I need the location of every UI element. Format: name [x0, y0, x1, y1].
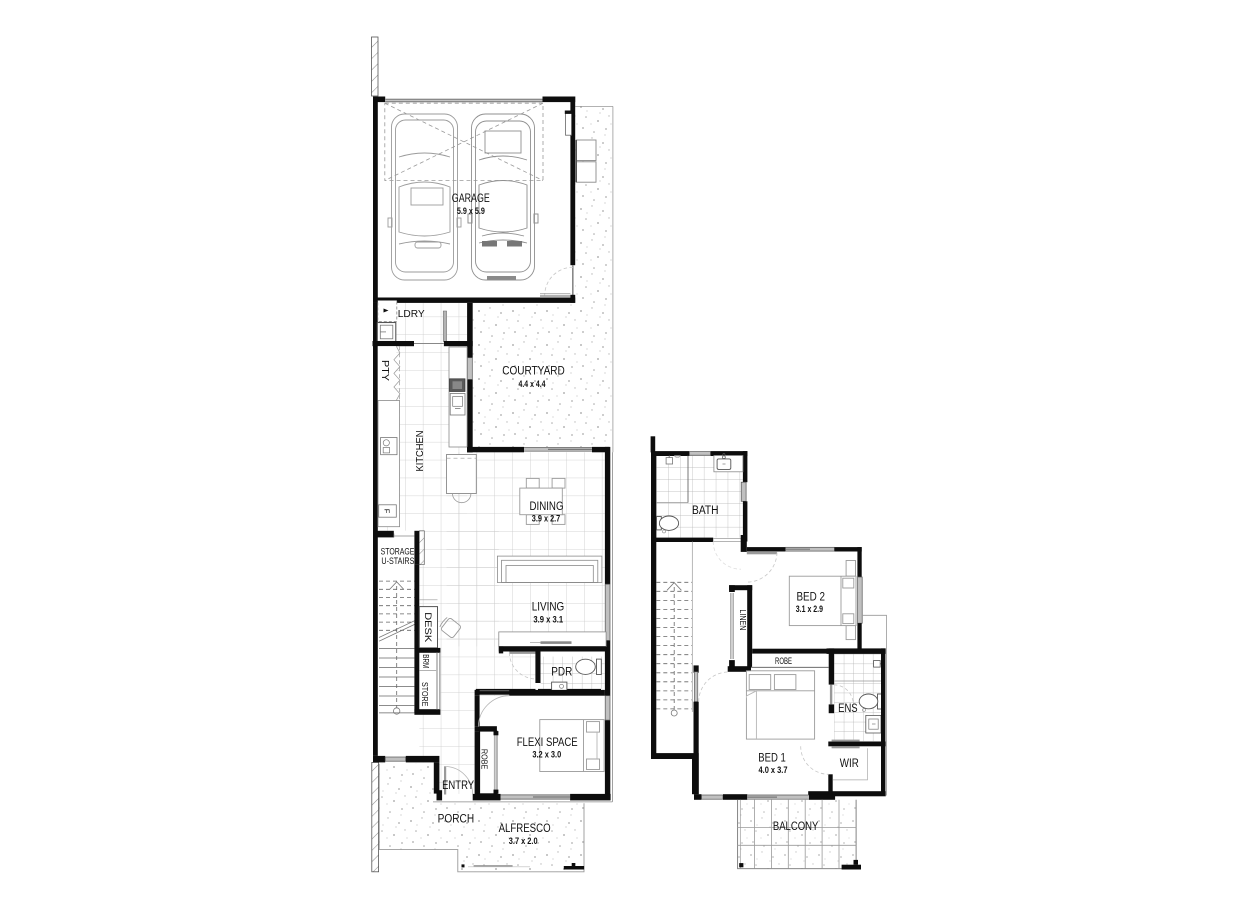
svg-text:BED 2: BED 2 — [796, 589, 825, 603]
svg-text:U-STAIRS: U-STAIRS — [381, 556, 414, 567]
svg-text:STORE: STORE — [420, 682, 430, 707]
svg-text:BATH: BATH — [692, 505, 719, 517]
svg-text:BRM: BRM — [421, 654, 431, 668]
svg-text:F: F — [383, 509, 392, 514]
svg-text:PTY: PTY — [379, 360, 391, 381]
svg-text:WIR: WIR — [840, 758, 859, 770]
svg-text:BED 1: BED 1 — [758, 750, 786, 764]
svg-text:COURTYARD: COURTYARD — [502, 364, 565, 378]
svg-text:LIVING: LIVING — [532, 599, 565, 613]
svg-text:DINING: DINING — [530, 499, 564, 513]
svg-text:4.0 x 3.7: 4.0 x 3.7 — [759, 765, 788, 775]
svg-text:ROBE: ROBE — [480, 749, 490, 770]
svg-text:ENTRY: ENTRY — [442, 780, 474, 792]
svg-text:PDR: PDR — [551, 666, 572, 678]
svg-text:4.4 x 4.4: 4.4 x 4.4 — [519, 379, 546, 389]
svg-text:PORCH: PORCH — [438, 813, 475, 825]
svg-text:3.9 x 3.1: 3.9 x 3.1 — [533, 614, 563, 624]
svg-text:LDRY: LDRY — [398, 308, 425, 320]
svg-text:BALCONY: BALCONY — [773, 821, 819, 833]
svg-text:3.2 x 3.0: 3.2 x 3.0 — [532, 750, 561, 760]
svg-text:LINEN: LINEN — [738, 609, 748, 630]
svg-text:ALFRESCO: ALFRESCO — [499, 821, 551, 835]
svg-text:3.1 x 2.9: 3.1 x 2.9 — [796, 604, 823, 614]
svg-text:GARAGE: GARAGE — [452, 191, 490, 205]
svg-text:ROBE: ROBE — [775, 656, 792, 666]
svg-text:KITCHEN: KITCHEN — [414, 431, 426, 472]
svg-text:3.7 x 2.0: 3.7 x 2.0 — [509, 836, 538, 846]
svg-text:3.9 x 2.7: 3.9 x 2.7 — [532, 514, 561, 524]
svg-text:5.9 x 5.9: 5.9 x 5.9 — [457, 206, 485, 216]
svg-text:FLEXI SPACE: FLEXI SPACE — [517, 735, 578, 749]
svg-text:ENS: ENS — [838, 703, 858, 715]
svg-text:DESK: DESK — [422, 612, 433, 643]
